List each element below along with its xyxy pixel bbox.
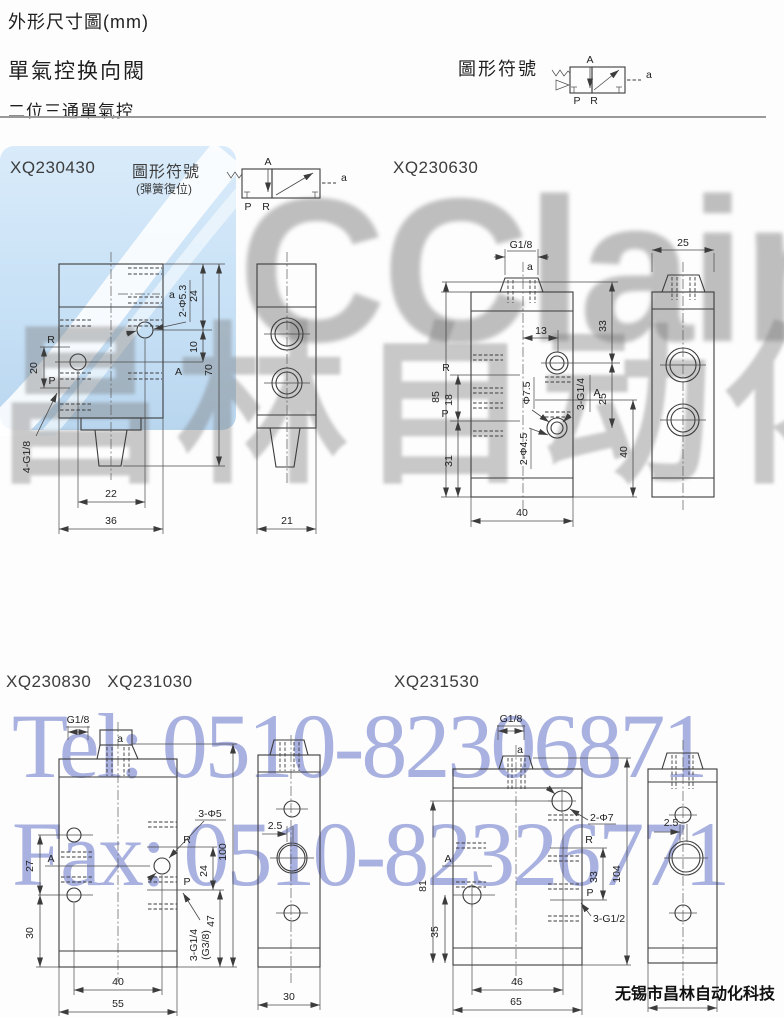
sym-port-r: R: [590, 95, 598, 107]
d1f-port-A: A: [175, 366, 182, 378]
valve-symbol-header: A a P R: [552, 54, 652, 107]
d1f-dim-70: 70: [203, 364, 215, 376]
d3s-offset-label: 2.5: [268, 820, 283, 832]
d1s-dim-21: 21: [281, 515, 293, 527]
d4f-dim-65: 65: [510, 996, 522, 1008]
d3f-hole-label: 3-Φ5: [198, 808, 222, 820]
d2f-dim-33: 33: [597, 320, 609, 332]
d2f-pilot-a: a: [527, 261, 533, 273]
d2f-dim-85: 85: [430, 391, 442, 403]
d1f-dim-22: 22: [105, 488, 117, 500]
d1f-pilot-a: a: [169, 289, 175, 301]
d3f-port-A: A: [47, 853, 54, 865]
sym2-port-p: P: [244, 201, 251, 213]
d1f-port-R: R: [47, 334, 55, 346]
dimension-drawings: A a P R A a P R: [0, 0, 784, 1017]
d2f-dim-18: 18: [443, 394, 455, 406]
xq230630-side-view: 25: [652, 237, 714, 512]
d4f-port-A: A: [444, 853, 451, 865]
xq230830-side-view: 2.5 30: [258, 735, 320, 1010]
d2f-dim-13: 13: [535, 325, 547, 337]
d4f-port-R: R: [585, 834, 593, 846]
d4f-dim-104: 104: [611, 865, 623, 883]
d2f-dim-40r: 40: [618, 446, 630, 458]
company-footer: 无锡市昌林自动化科技: [615, 980, 775, 1004]
d2f-hole-label: 2-Φ4.5: [518, 433, 530, 465]
d3f-dim-47: 47: [205, 915, 217, 927]
d3f-dim-100: 100: [217, 843, 229, 861]
d1f-dim-24: 24: [188, 290, 200, 302]
xq230430-side-view: 21: [257, 252, 316, 534]
d1f-port-P: P: [48, 375, 55, 387]
d4f-dim-33: 33: [588, 871, 600, 883]
d2f-dia-label: Φ7.5: [521, 381, 533, 404]
datasheet-page: CClair 昌林自动化 Tel: 0510-82306871 Fax: 051…: [0, 0, 784, 1017]
d2f-dim-40b: 40: [516, 507, 528, 519]
d2f-thread-g18: G1/8: [510, 239, 533, 251]
d4f-dim-46: 46: [511, 976, 523, 988]
xq230830-front-view: G1/8 a 100 R P 24 47 A: [24, 714, 237, 1016]
valve-symbol-xq230430: A a P R: [227, 156, 347, 213]
d2f-port-P: P: [441, 408, 448, 420]
sym2-port-r: R: [262, 201, 270, 213]
xq231530-front-view: G1/8 a 104 2-Φ7 81: [417, 713, 631, 1015]
d1f-dim-10: 10: [188, 341, 200, 353]
sym-port-p: P: [573, 95, 580, 107]
d4f-thread-g18: G1/8: [500, 713, 523, 725]
d3f-port-P: P: [183, 876, 190, 888]
d4f-dim-81: 81: [417, 880, 429, 892]
d1f-dim-20: 20: [28, 362, 40, 374]
xq230430-front-view: a A R P 20 4-G1/8 2-Φ5.3: [21, 252, 225, 534]
xq230630-front-view: G1/8 a 85 R P 18 31: [430, 239, 637, 527]
sym-port-a-top: A: [586, 54, 593, 66]
d3f-thread-g18: G1/8: [67, 714, 90, 726]
d4f-port-P: P: [586, 887, 593, 899]
d3f-dim-40: 40: [112, 976, 124, 988]
d4f-thread-label: 3-G1/2: [593, 913, 625, 925]
d1f-thread-label: 4-G1/8: [21, 441, 33, 473]
d2f-dim-25: 25: [597, 393, 609, 405]
d2f-dim-31: 31: [443, 455, 455, 467]
d2f-thread-label: 3-G1/4: [575, 378, 587, 410]
sym2-pilot-a: a: [341, 172, 347, 184]
d2f-port-R: R: [442, 362, 450, 374]
d3f-dim-30: 30: [24, 927, 36, 939]
d3f-dim-55: 55: [112, 998, 124, 1010]
d3f-dim-24: 24: [198, 865, 210, 877]
d1f-dim-36: 36: [105, 515, 117, 527]
d2s-dim-25: 25: [677, 237, 689, 249]
sym-pilot-a: a: [646, 69, 652, 81]
xq231530-side-view: 2.5: [648, 740, 717, 1012]
d3s-dim-30: 30: [283, 991, 295, 1003]
d3f-thread-label: 3-G1/4: [188, 929, 200, 961]
d3f-thread2-label: (G3/8): [200, 930, 212, 960]
d4f-hole-label: 2-Φ7: [590, 812, 614, 824]
d4s-offset-label: 2.5: [664, 817, 679, 829]
d4f-dim-35: 35: [429, 926, 441, 938]
sym2-port-a-top: A: [264, 156, 271, 168]
d3f-dim-27: 27: [24, 860, 36, 872]
d4f-pilot-a: a: [517, 744, 523, 756]
